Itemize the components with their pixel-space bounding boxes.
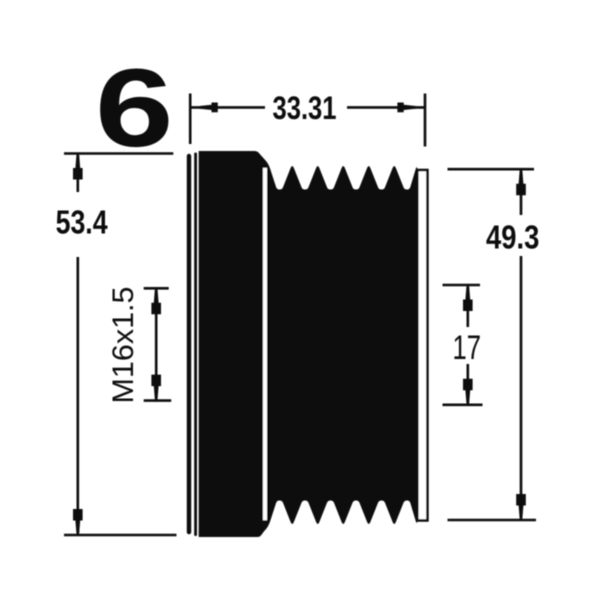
svg-text:M16x1.5: M16x1.5 xyxy=(107,287,140,404)
svg-text:49.3: 49.3 xyxy=(486,219,539,256)
svg-text:17: 17 xyxy=(453,329,482,367)
svg-text:33.31: 33.31 xyxy=(273,90,337,126)
svg-text:6: 6 xyxy=(95,46,174,170)
svg-text:53.4: 53.4 xyxy=(56,204,109,241)
